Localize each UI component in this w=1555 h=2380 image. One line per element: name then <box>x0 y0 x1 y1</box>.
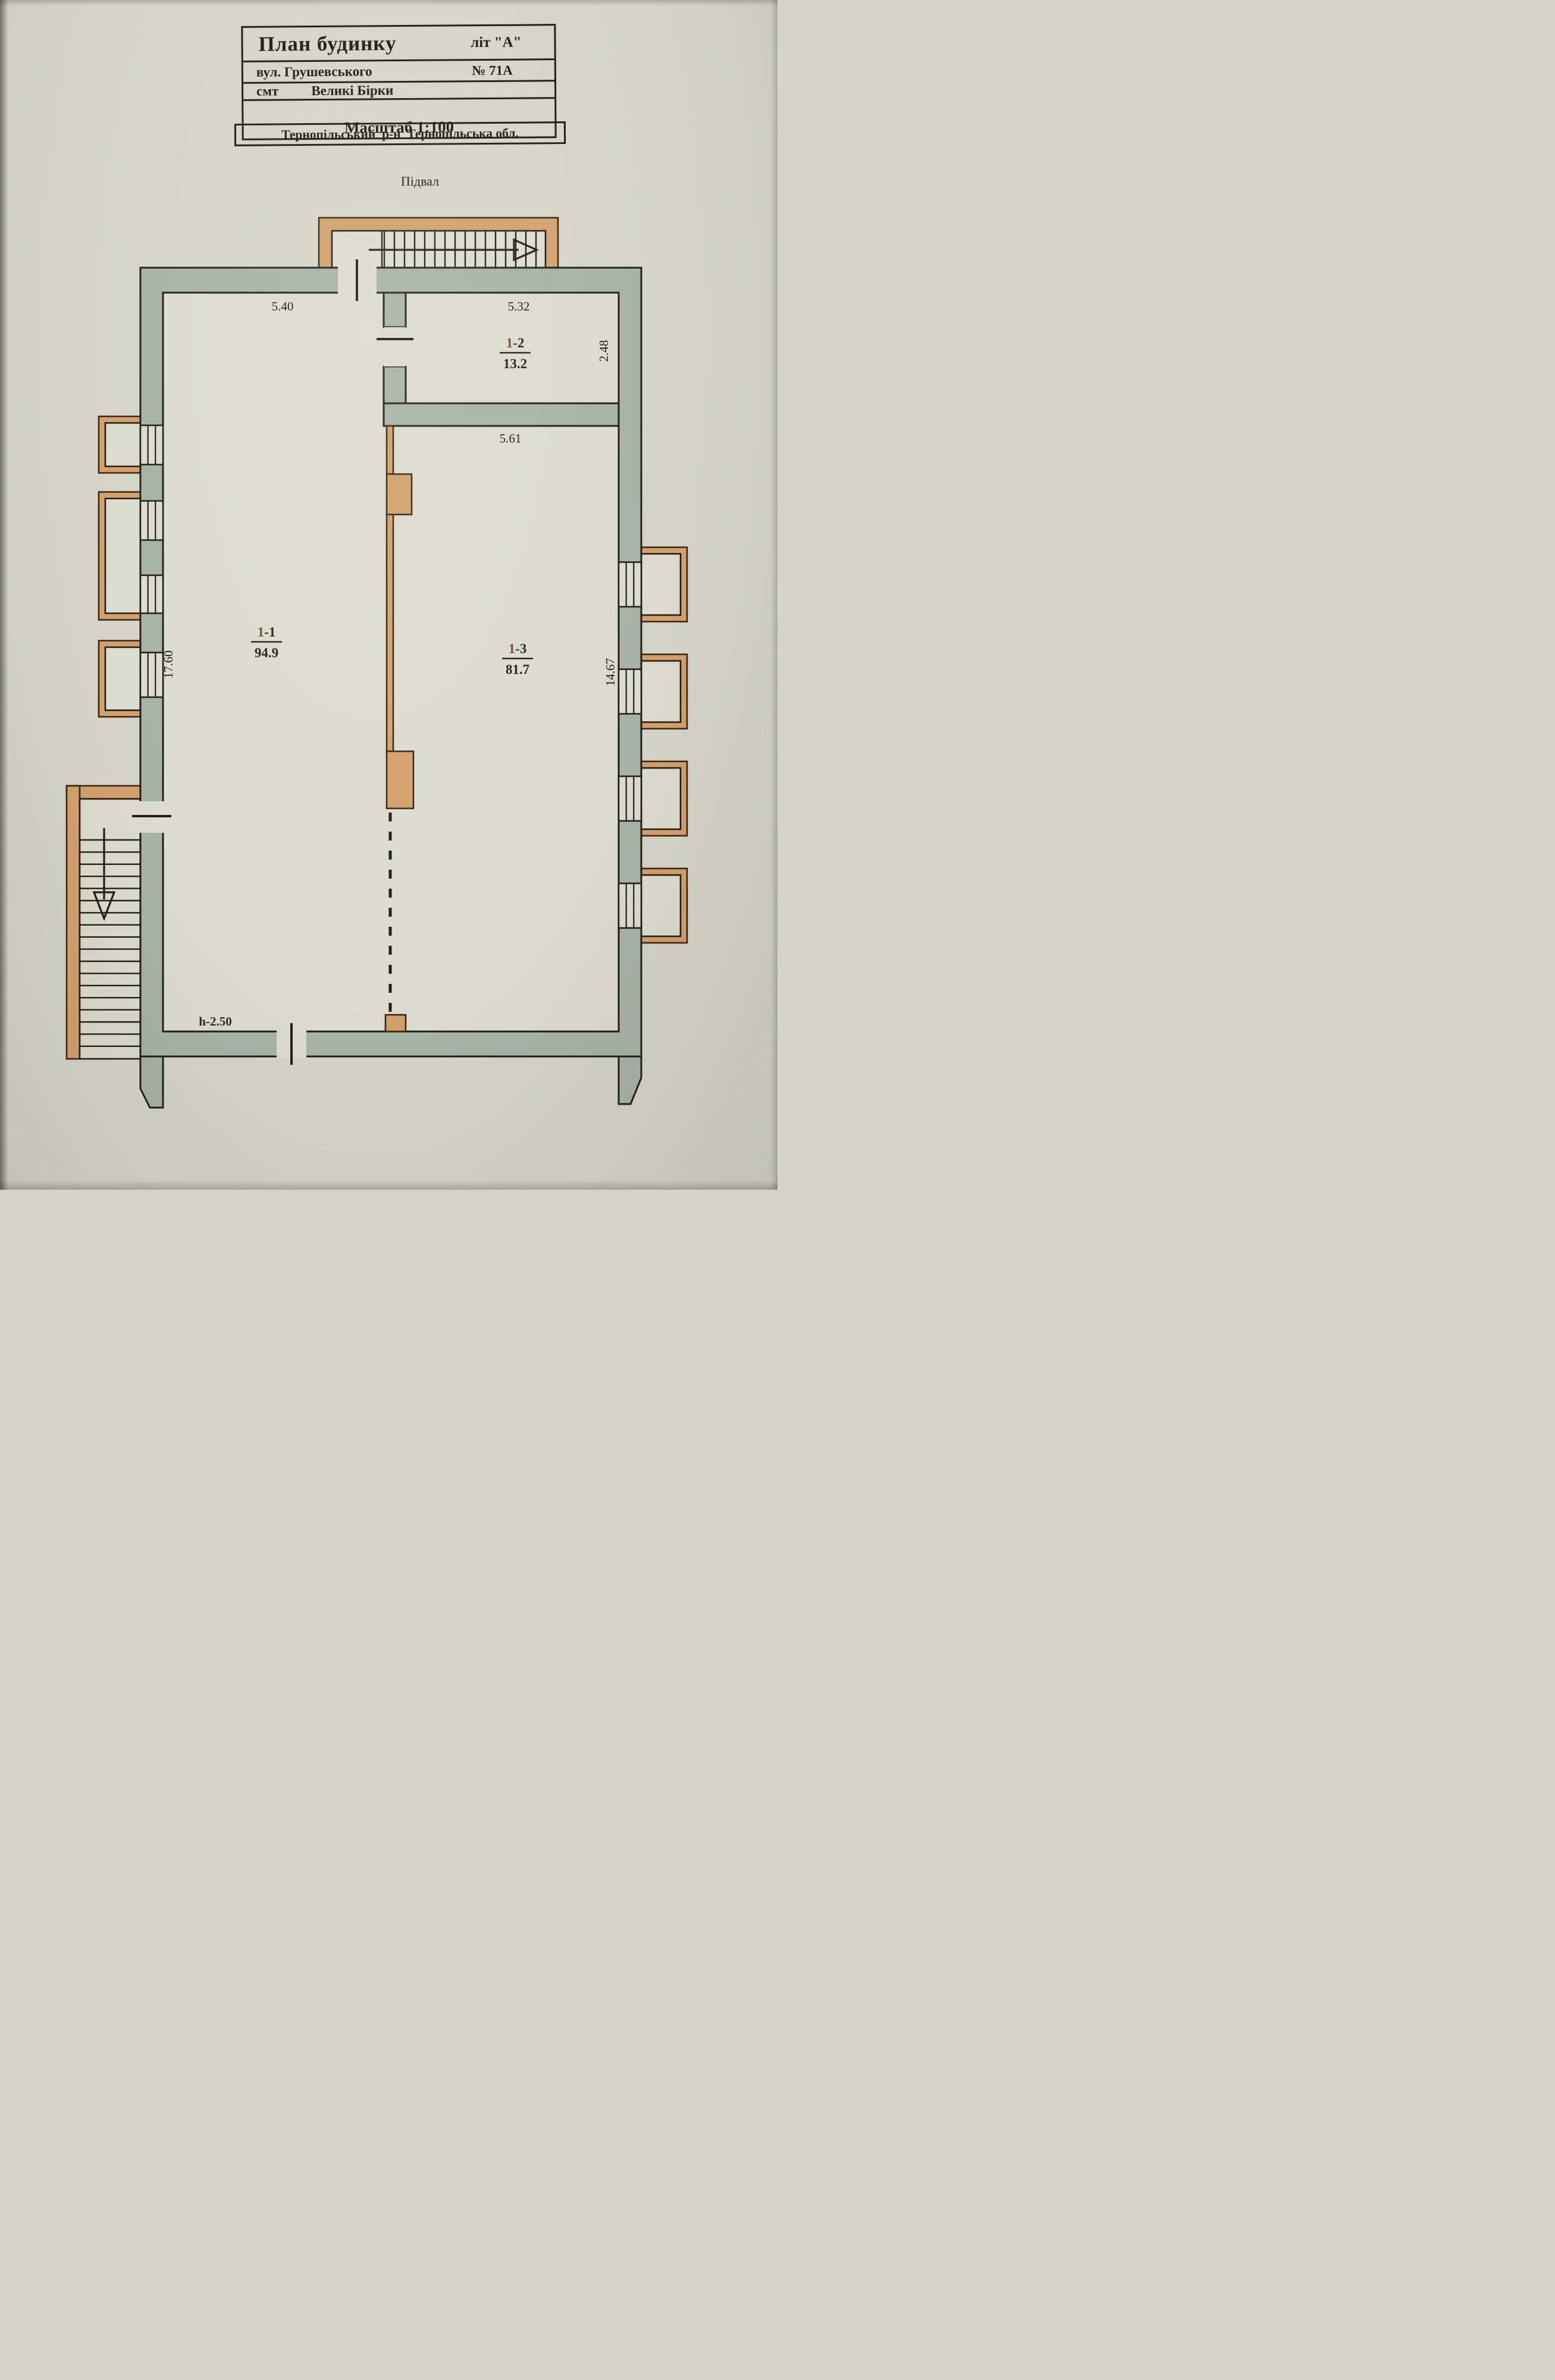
svg-text:13.2: 13.2 <box>503 356 527 371</box>
window-well-inner <box>105 423 143 466</box>
street-name: вул. Грушевського <box>256 64 372 80</box>
basement-window <box>619 562 641 607</box>
window-well-inner <box>640 661 681 722</box>
svg-text:94.9: 94.9 <box>255 645 278 660</box>
dim-left-height: 17.60 <box>161 650 175 678</box>
scanned-floor-plan-page: 5.40 5.32 5.61 2.48 17.60 14.67 h-2.50 1… <box>0 0 777 1190</box>
bottom-left-pier <box>140 1056 163 1108</box>
basement-window <box>140 575 163 613</box>
floor-label: Підвал <box>360 174 479 189</box>
room2-door-opening <box>384 327 406 366</box>
window-well-inner <box>640 875 681 936</box>
basement-window <box>619 669 641 714</box>
top-staircase <box>319 218 558 268</box>
masonry-strip-upper <box>387 426 393 474</box>
window-well-inner <box>105 647 143 710</box>
dim-room1-top: 5.40 <box>272 299 294 313</box>
left-stair-interior <box>80 799 140 1059</box>
district-label: Тернопільський р-н Тернопільська обл. <box>281 126 519 142</box>
masonry-strip-lower <box>387 515 393 751</box>
basement-entry-staircase <box>67 786 140 1059</box>
window-well-inner <box>640 554 681 615</box>
masonry-pier-square <box>387 751 413 808</box>
dim-room2-top: 5.32 <box>508 299 530 313</box>
basement-window <box>619 883 641 928</box>
svg-text:1-1: 1-1 <box>258 625 276 639</box>
window-well-inner <box>105 498 143 613</box>
central-wall-upper <box>384 293 406 327</box>
ceiling-height-note: h-2.50 <box>199 1014 231 1028</box>
district-row: Тернопільський р-н Тернопільська обл. <box>234 121 566 146</box>
basement-window <box>140 501 163 540</box>
dim-room2-right: 2.48 <box>597 340 611 362</box>
masonry-block-bottom <box>385 1015 406 1031</box>
settlement-type: смт <box>256 83 278 99</box>
left-stair-enclosure-side <box>67 786 80 1059</box>
settlement-row: смт Великі Бірки <box>243 81 554 101</box>
house-number: № 71А <box>472 62 513 78</box>
dim-room2-bottom: 5.61 <box>500 431 522 446</box>
basement-window <box>619 776 641 821</box>
svg-text:1-2: 1-2 <box>506 335 525 350</box>
svg-text:81.7: 81.7 <box>506 662 529 677</box>
title-row: План будинку літ "А" <box>243 26 554 62</box>
basement-window <box>140 425 163 465</box>
window-well-inner <box>640 768 681 829</box>
right-window-wells <box>640 547 687 943</box>
left-window-wells <box>99 416 143 717</box>
room2-bottom-wall <box>384 403 619 426</box>
street-row: вул. Грушевського № 71А <box>243 60 554 84</box>
settlement-name: Великі Бірки <box>311 83 393 99</box>
svg-text:1-3: 1-3 <box>509 641 527 656</box>
basement-window <box>140 653 163 697</box>
building-letter: літ "А" <box>471 34 522 51</box>
bottom-right-pier <box>619 1056 641 1104</box>
masonry-pier-middle <box>387 474 412 515</box>
dim-right-height: 14.67 <box>603 658 617 686</box>
plan-title: План будинку <box>258 32 396 57</box>
